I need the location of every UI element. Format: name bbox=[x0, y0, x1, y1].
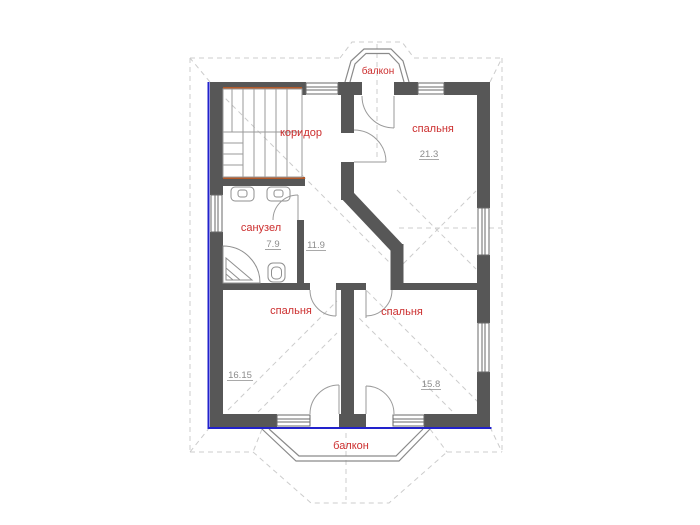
label-balcony-bottom: балкон bbox=[333, 440, 369, 452]
wall-corridor-top-a bbox=[341, 95, 354, 133]
label-bedroom-right: спальня bbox=[381, 306, 423, 318]
sink-right bbox=[267, 187, 290, 201]
window-bottom-right bbox=[393, 415, 424, 426]
window-bottom-left bbox=[277, 415, 310, 426]
door-bedroom-left bbox=[310, 290, 336, 316]
window-right-lower bbox=[478, 323, 489, 372]
wall-bottom-2 bbox=[339, 414, 366, 427]
wall-middle-a bbox=[223, 283, 310, 290]
wall-top-2 bbox=[338, 82, 362, 95]
wall-top-3 bbox=[394, 82, 418, 95]
door-balcony-bottom-left bbox=[310, 385, 339, 414]
window-top-right bbox=[418, 83, 444, 94]
window-right-upper bbox=[478, 208, 489, 255]
area-bedroom-top: 21.3 bbox=[420, 149, 439, 160]
window-top-left bbox=[306, 83, 338, 94]
wall-bottom-1 bbox=[210, 414, 277, 427]
window-left bbox=[211, 195, 222, 232]
area-bathroom: 7.9 bbox=[266, 239, 279, 250]
accent-line-bottom bbox=[208, 427, 492, 429]
corner-shower bbox=[223, 246, 260, 283]
floor-plan-page: коридор спальня санузел спальня спальня … bbox=[0, 0, 700, 525]
label-bedroom-top: спальня bbox=[412, 123, 454, 135]
door-bedroom-top bbox=[354, 130, 386, 162]
area-corridor: 11.9 bbox=[307, 240, 325, 251]
wall-bedroom-divider bbox=[341, 290, 354, 414]
label-bedroom-left: спальня bbox=[270, 305, 312, 317]
wall-bathroom-top bbox=[223, 179, 305, 186]
doors bbox=[273, 96, 394, 414]
label-corridor: коридор bbox=[280, 127, 322, 139]
wall-left-2 bbox=[210, 232, 223, 427]
floor-plan-drawing: коридор спальня санузел спальня спальня … bbox=[0, 0, 700, 525]
area-bedroom-left: 16.15 bbox=[228, 370, 252, 381]
roof-balcony-bottom-outline bbox=[253, 452, 447, 503]
door-balcony-top bbox=[362, 96, 394, 128]
toilet bbox=[268, 263, 285, 282]
wall-bottom-3 bbox=[424, 414, 490, 427]
wall-left-1 bbox=[210, 82, 223, 195]
wall-middle-b bbox=[392, 283, 477, 290]
wall-right-2 bbox=[477, 255, 490, 323]
area-bedroom-right: 15.8 bbox=[422, 379, 441, 390]
wall-middle-pier bbox=[336, 283, 366, 290]
sink-left bbox=[231, 187, 254, 201]
wall-bathroom-right bbox=[297, 220, 304, 283]
bathroom-fixtures bbox=[223, 187, 290, 283]
wall-diagonal bbox=[347, 195, 398, 249]
label-bathroom: санузел bbox=[241, 222, 281, 234]
diagonal-wall bbox=[347, 195, 398, 249]
label-balcony-top: балкон bbox=[362, 65, 394, 77]
door-balcony-bottom-right bbox=[366, 386, 394, 414]
wall-right-1 bbox=[477, 82, 490, 208]
accent-line-left bbox=[208, 82, 210, 429]
